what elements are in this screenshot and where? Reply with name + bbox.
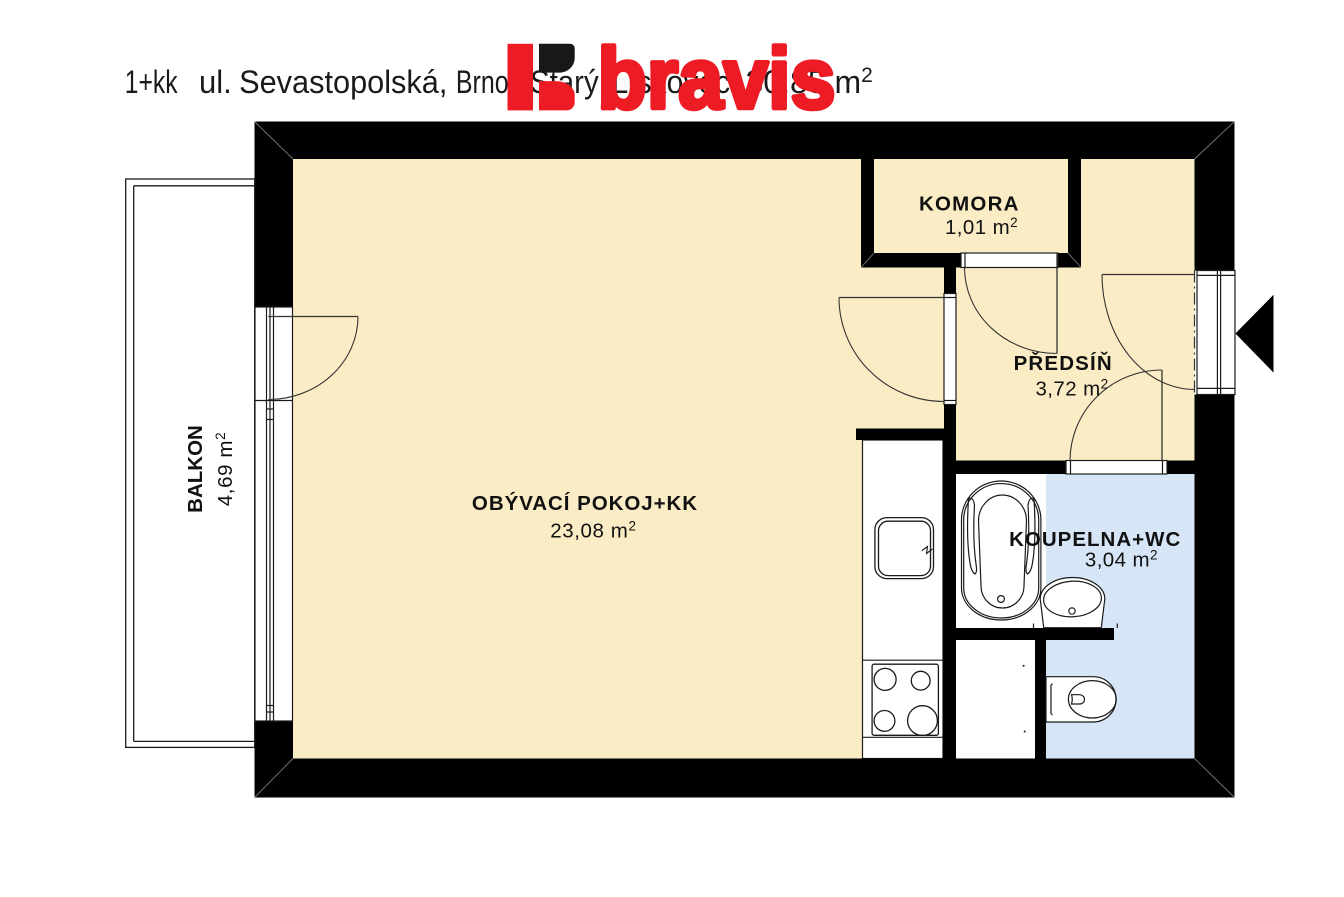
svg-text:23,08 m2: 23,08 m2: [550, 519, 636, 543]
svg-text:BALKON: BALKON: [184, 425, 207, 513]
svg-text:3,04 m2: 3,04 m2: [1085, 548, 1158, 572]
svg-text:3,72 m2: 3,72 m2: [1036, 377, 1109, 401]
svg-text:1+kk: 1+kk: [125, 65, 178, 101]
svg-text:Sevastopolská,: Sevastopolská,: [239, 64, 447, 100]
svg-text:1,01 m2: 1,01 m2: [945, 215, 1018, 239]
svg-text:ul.: ul.: [199, 64, 232, 101]
svg-text:OBÝVACÍ POKOJ+KK: OBÝVACÍ POKOJ+KK: [472, 491, 698, 515]
svg-text:KOMORA: KOMORA: [919, 193, 1020, 216]
svg-text:Brno: Brno: [456, 65, 509, 101]
svg-text:PŘEDSÍŇ: PŘEDSÍŇ: [1014, 351, 1113, 375]
svg-text:4,69 m2: 4,69 m2: [213, 432, 237, 506]
svg-text:bravis: bravis: [598, 31, 836, 127]
